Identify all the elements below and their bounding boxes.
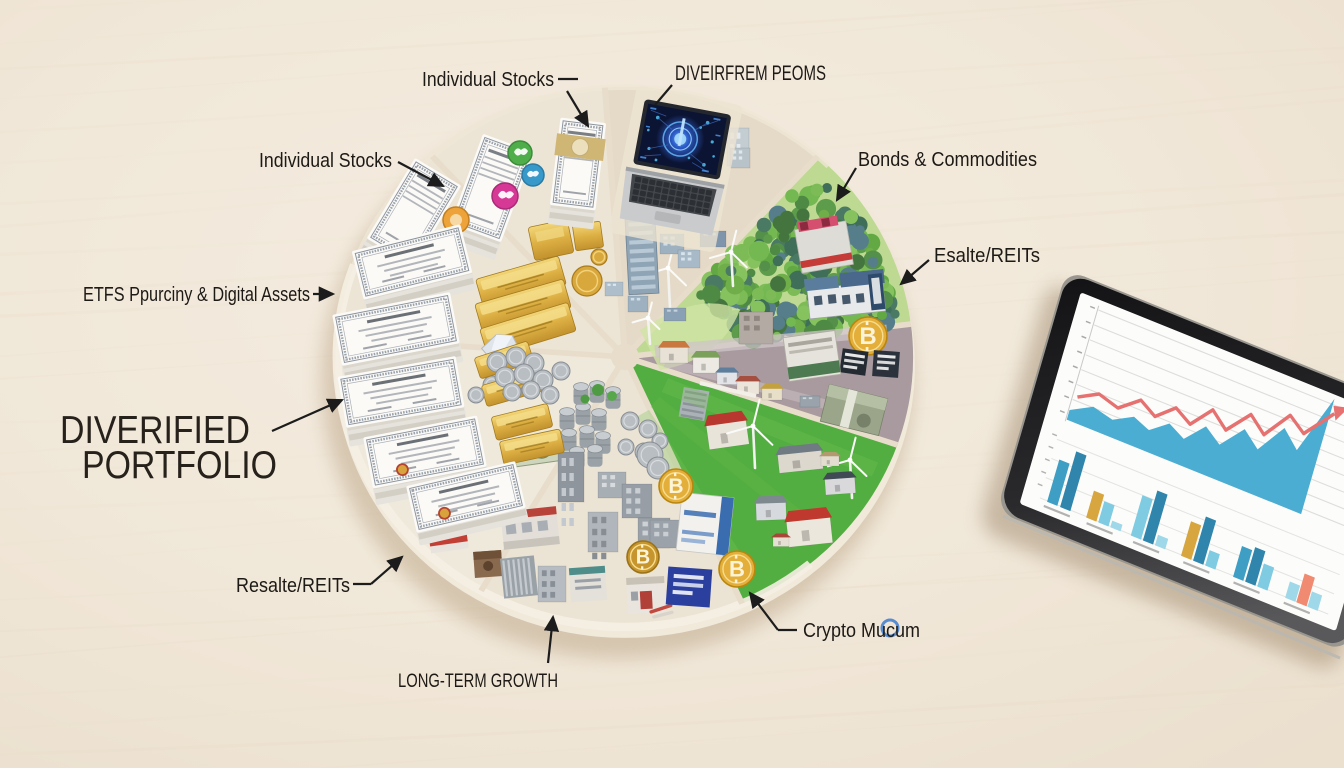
svg-text:Individual Stocks: Individual Stocks [259, 150, 392, 172]
svg-text:Esalte/REITs: Esalte/REITs [934, 245, 1040, 267]
svg-text:LONG-TERM GROWTH: LONG-TERM GROWTH [398, 671, 558, 692]
svg-text:B: B [859, 323, 876, 350]
svg-text:ETFS Ppurciny & Digital Assets: ETFS Ppurciny & Digital Assets [83, 284, 310, 306]
svg-text:B: B [668, 475, 683, 498]
svg-text:Bonds & Commodities: Bonds & Commodities [858, 149, 1037, 171]
svg-text:PORTFOLIO: PORTFOLIO [82, 444, 277, 487]
svg-text:DIVEIRFREM PEOMS: DIVEIRFREM PEOMS [675, 62, 826, 85]
svg-text:B: B [636, 547, 650, 569]
svg-text:Individual Stocks: Individual Stocks [422, 69, 554, 91]
svg-text:Crypto Mucum: Crypto Mucum [803, 620, 920, 642]
svg-text:B: B [729, 557, 745, 582]
svg-text:Resalte/REITs: Resalte/REITs [236, 575, 350, 597]
